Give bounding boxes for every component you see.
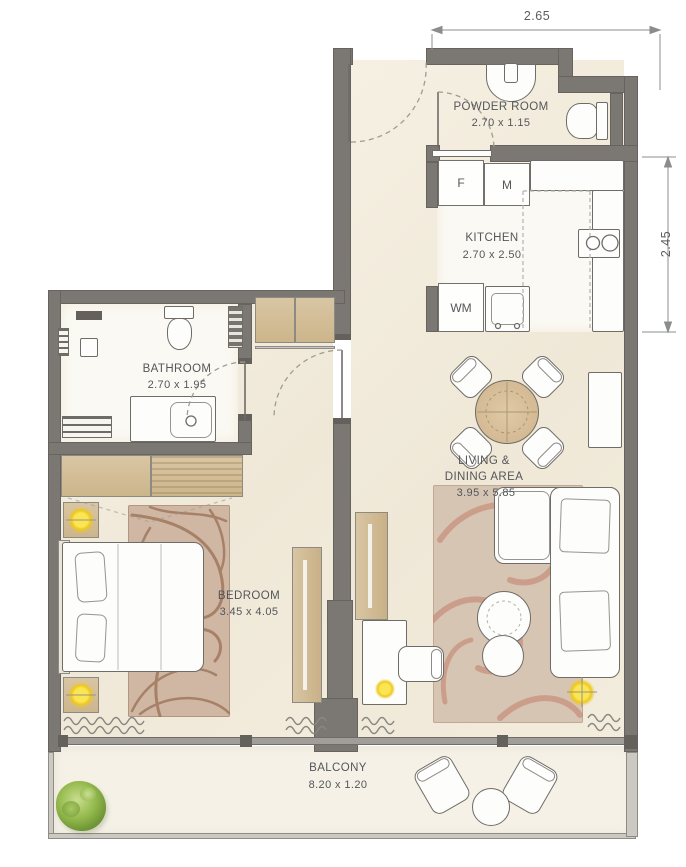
balcony-rail-left [48,752,54,838]
wall-segment [426,48,566,65]
wall-left-outer [48,290,61,752]
wardrobe-slats [152,456,242,496]
balcony-rail-bottom [48,833,636,839]
bathroom-shelf [228,306,243,348]
door-jamb [333,418,351,424]
living-label-line1: LIVING & [458,455,510,467]
dim-top-label: 2.65 [524,9,550,23]
bedroom-shelving [292,547,322,703]
balcony-label: BALCONY [309,762,367,774]
kitchen-counter-top [530,160,624,191]
wall-kitchen-stub [426,162,438,208]
fridge-label: F [457,176,464,190]
sofa-cushion [559,498,611,554]
shower-jets [58,328,69,356]
door-jamb [238,358,252,364]
fridge-cabinet: F [438,160,484,206]
tv-console [588,372,622,448]
microwave-label: M [502,178,512,192]
wall-spine-mid [333,418,351,602]
sofa-cushion [559,590,611,652]
coffee-table-small [482,635,524,677]
powder-toilet-bowl [566,103,598,139]
sofa-chaise [498,491,550,560]
kitchen-label: KITCHEN [465,232,518,244]
shower-head [80,338,98,357]
wall-spine-lower [327,600,353,702]
window-jamb [240,735,252,747]
pillow [74,551,107,603]
powder-room-label: POWDER ROOM [453,101,548,113]
floor-lamp [568,679,595,706]
balcony-table [472,788,510,826]
desk-lamp [375,679,395,699]
powder-toilet-tank [596,102,608,140]
microwave-cabinet: M [484,163,530,206]
pillow [75,613,107,663]
bedroom-label: BEDROOM [218,590,280,602]
bathroom-toilet-bowl [167,318,192,350]
floor-plan: F M WM [0,0,686,867]
cooktop [578,229,620,258]
balcony-window-wall [58,737,638,745]
window-jamb [624,735,638,749]
powder-room-size: 2.70 x 1.15 [472,117,531,129]
kitchen-counter-right [592,190,624,332]
window-jamb [58,735,68,747]
shelving-slit [303,560,307,690]
bathroom-size: 2.70 x 1.95 [148,379,207,391]
desk-chair [398,646,444,682]
plant [56,781,106,831]
living-size: 3.95 x 5.85 [457,487,516,499]
towel-rack [62,416,112,438]
bathroom-label: BATHROOM [143,363,212,375]
closet-divider [294,298,296,342]
window-jamb [497,735,508,747]
shelving-slit [368,524,372,608]
table-lamp [68,507,94,533]
door-jamb [238,414,252,420]
wall-kitchen-stub [426,286,438,332]
wall-right-outer [624,76,638,752]
kitchen-size: 2.70 x 2.50 [463,249,522,261]
powder-sink-faucet [504,63,518,83]
wall-bathroom-bottom [48,442,252,455]
dining-table [475,380,539,444]
vanity-basin [170,402,212,438]
dishwasher-door [491,293,524,325]
living-label-line2: DINING AREA [445,471,524,483]
balcony-rail-right [626,752,638,837]
balcony-size: 8.20 x 1.20 [309,779,368,791]
table-lamp [68,682,94,708]
closet-track [255,346,335,349]
powder-sliding-door [432,150,492,157]
washer-label: WM [450,301,471,315]
shower-arm [76,311,102,320]
bedroom-size: 3.45 x 4.05 [220,606,279,618]
washing-machine: WM [438,283,484,332]
dim-right-label: 2.45 [659,224,673,264]
wall-toilet-partition [610,93,623,148]
door-jamb [333,334,351,340]
